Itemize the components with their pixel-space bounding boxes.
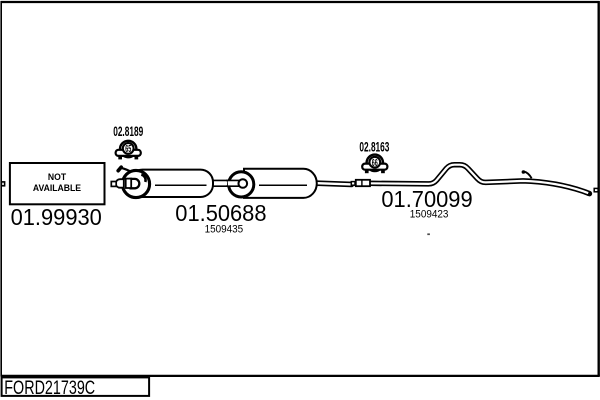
svg-text:FORD21739C: FORD21739C bbox=[4, 377, 95, 398]
svg-text:01.50688: 01.50688 bbox=[175, 201, 266, 227]
svg-text:AVAILABLE: AVAILABLE bbox=[33, 183, 81, 194]
svg-text:01.99930: 01.99930 bbox=[11, 205, 102, 231]
svg-text:02.8163: 02.8163 bbox=[359, 141, 389, 155]
svg-text:1509423: 1509423 bbox=[410, 209, 449, 220]
svg-text:NOT: NOT bbox=[48, 172, 67, 183]
svg-text:65: 65 bbox=[125, 143, 131, 154]
svg-text:01.70099: 01.70099 bbox=[381, 187, 472, 213]
svg-text:1509435: 1509435 bbox=[205, 224, 244, 235]
svg-text:02.8189: 02.8189 bbox=[113, 125, 143, 139]
svg-text:66: 66 bbox=[372, 157, 378, 168]
